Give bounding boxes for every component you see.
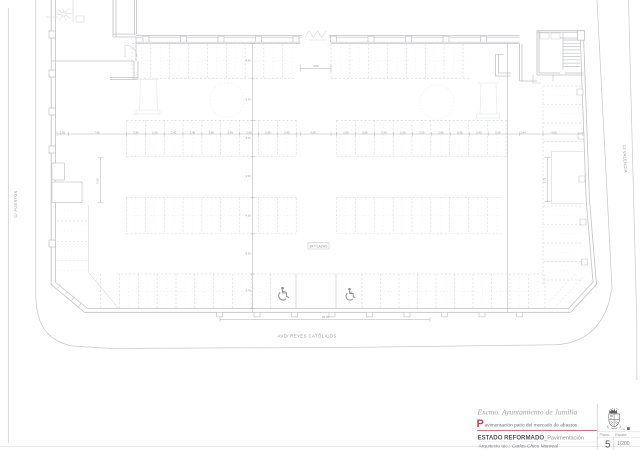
svg-text:2.40: 2.40 xyxy=(171,130,177,134)
svg-text:2.40: 2.40 xyxy=(133,130,139,134)
svg-text:4.70: 4.70 xyxy=(246,136,252,140)
svg-text:cta: cta xyxy=(622,427,626,431)
svg-text:2.40: 2.40 xyxy=(400,130,406,134)
svg-text:4.60: 4.60 xyxy=(551,130,557,134)
svg-text:2.40: 2.40 xyxy=(246,130,252,134)
svg-text:Excmo. Ayuntamiento de Jumilla: Excmo. Ayuntamiento de Jumilla xyxy=(477,408,578,417)
svg-text:Escala:: Escala: xyxy=(615,433,627,437)
svg-text:AVD/ REYES CATÓLICOS: AVD/ REYES CATÓLICOS xyxy=(277,334,336,339)
svg-text:2.40: 2.40 xyxy=(495,130,501,134)
svg-text:4.43: 4.43 xyxy=(246,59,252,63)
svg-text:5.00: 5.00 xyxy=(96,178,100,184)
svg-text:5.30: 5.30 xyxy=(246,98,252,102)
svg-text:5: 5 xyxy=(605,440,611,450)
svg-text:5.30: 5.30 xyxy=(246,252,252,256)
svg-text:1.44: 1.44 xyxy=(520,130,526,134)
svg-text:2.40: 2.40 xyxy=(438,130,444,134)
svg-text:P: P xyxy=(477,418,484,430)
svg-text:C/ PUERTOS: C/ PUERTOS xyxy=(13,190,18,217)
svg-text:Plano:: Plano: xyxy=(600,433,610,437)
svg-text:4.59: 4.59 xyxy=(310,130,316,134)
svg-text:4.70: 4.70 xyxy=(246,289,252,293)
svg-text:2.40: 2.40 xyxy=(343,130,349,134)
svg-text:2.40: 2.40 xyxy=(457,130,463,134)
svg-text:2.40: 2.40 xyxy=(152,130,158,134)
svg-text:7.90: 7.90 xyxy=(94,130,100,134)
svg-text:1.50: 1.50 xyxy=(60,130,66,134)
svg-text:3.72: 3.72 xyxy=(543,177,547,183)
svg-text:2.40: 2.40 xyxy=(381,130,387,134)
svg-text:2.40: 2.40 xyxy=(476,130,482,134)
svg-text:1/200: 1/200 xyxy=(617,441,630,447)
svg-text:2.40: 2.40 xyxy=(228,130,234,134)
svg-text:2.30: 2.30 xyxy=(246,174,252,178)
svg-text:2.40: 2.40 xyxy=(265,130,271,134)
svg-text:35.95: 35.95 xyxy=(322,315,330,319)
svg-text:2.40: 2.40 xyxy=(190,130,196,134)
svg-text:2.40: 2.40 xyxy=(362,130,368,134)
svg-text:Arquitecto téc.: Carlos Chico: Arquitecto téc.: Carlos Chico Monreal xyxy=(479,443,559,449)
svg-text:ESTADO REFORMADO_Pavimentación: ESTADO REFORMADO_Pavimentación xyxy=(478,434,584,441)
svg-text:4.85: 4.85 xyxy=(313,64,319,68)
svg-text:2.40: 2.40 xyxy=(284,130,290,134)
svg-text:2.40: 2.40 xyxy=(419,130,425,134)
svg-text:4.10: 4.10 xyxy=(246,214,252,218)
svg-text:2.40: 2.40 xyxy=(209,130,215,134)
svg-text:avimentación patio del mercado: avimentación patio del mercado de abasto… xyxy=(485,422,578,428)
svg-text:84 PLAZAS: 84 PLAZAS xyxy=(310,245,328,249)
